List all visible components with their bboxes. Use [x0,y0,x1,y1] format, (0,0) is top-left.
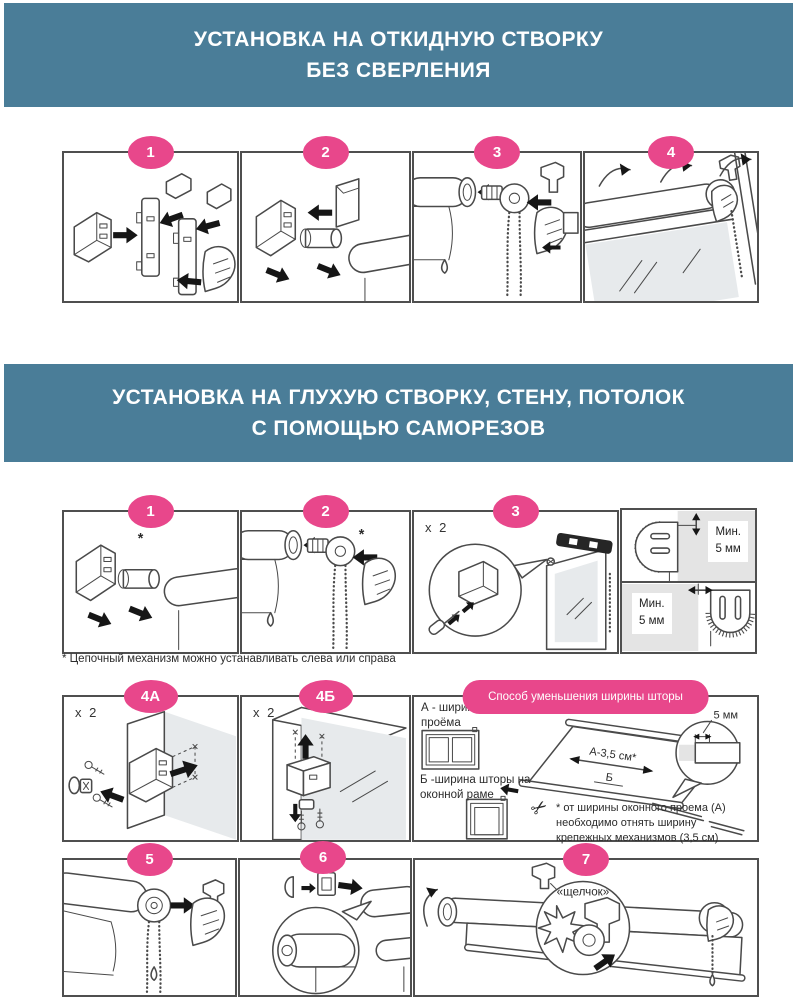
arrow-icon [194,215,222,237]
brackets-assembly-illustration [64,153,237,301]
chain-icon [333,566,335,650]
window-two-pane-icon [422,728,479,769]
step-panel-s1-1: 1 [62,151,239,303]
bracket-adapter-illustration: * [64,512,237,652]
width-reduction-title: Способ уменьшения ширины шторы [462,680,709,714]
section1-title-line2: БЕЗ СВЕРЛЕНИЯ [306,55,490,86]
section2-title-line2: С ПОМОЩЬЮ САМОРЕЗОВ [252,413,546,444]
step-panel-s2-3: 3 x 2 [412,510,619,654]
step-panel-s1-4: 4 [583,151,759,303]
width-reduction-footnote: * от ширины оконного проема (А) необходи… [556,801,752,846]
section2-title-line1: УСТАНОВКА НА ГЛУХУЮ СТВОРКУ, СТЕНУ, ПОТО… [112,382,685,413]
chain-icon [147,922,149,993]
quantity-label: x 2 [75,705,98,720]
step-badge: 3 [493,495,539,528]
click-into-bracket-illustration: «щелчок» [415,860,757,995]
mounted-blind-tilt-illustration [585,153,757,301]
step-panel-4b: 4Б x 2 [240,695,411,842]
arrow-icon [97,784,126,808]
rotate-arrow-icon [599,164,630,187]
instruction-sheet: УСТАНОВКА НА ОТКИДНУЮ СТВОРКУ БЕЗ СВЕРЛЕ… [0,0,793,1000]
min-clearance-label: Мин. 5 мм [632,593,672,634]
step-badge: 4 [648,136,694,169]
bracket-adapter-tube-illustration [242,153,409,301]
step-panel-s1-3: 3 [412,151,582,303]
arrow-icon [264,262,293,286]
step-badge: 2 [303,136,349,169]
spirit-level-icon [556,533,612,554]
step-badge: 4А [124,680,178,713]
arrow-icon [315,258,344,282]
arrow-icon [337,877,364,897]
quantity-label: x 2 [425,520,448,535]
arrow-icon [308,204,333,220]
min-clearance-label: Мин. 5 мм [708,521,748,562]
width-reduction-panel: Способ уменьшения ширины шторы А - ширин… [412,695,759,842]
step-panel-6 [238,858,412,997]
step-badge: 4Б [299,680,353,713]
attach-cap-illustration [64,860,235,995]
dim-5mm-label: 5 мм [713,709,738,721]
arrow-icon [86,607,115,631]
step-badge: 3 [474,136,520,169]
section1-title-line1: УСТАНОВКА НА ОТКИДНУЮ СТВОРКУ [194,24,603,55]
quantity-label: x 2 [253,705,276,720]
chain-icon [345,566,346,650]
arrow-icon [113,227,138,243]
roller-chain-cap-illustration [414,153,580,301]
step-panel-5: 5 [62,858,237,997]
arrow-icon [126,601,155,625]
section1-header-banner: УСТАНОВКА НА ОТКИДНУЮ СТВОРКУ БЕЗ СВЕРЛЕ… [4,3,793,107]
section2-header-banner: УСТАНОВКА НА ГЛУХУЮ СТВОРКУ, СТЕНУ, ПОТО… [4,364,793,462]
roller-chain-cap-illustration: * [242,512,409,652]
min-clearance-top-panel: Мин. 5 мм [620,508,757,585]
chain-side-note: * Цепочный механизм можно устанавливать … [62,653,396,665]
rotate-arrow-icon [424,888,437,926]
step-badge: 2 [303,495,349,528]
insert-end-plug-illustration [240,860,410,995]
min-clearance-bottom-panel: Мин. 5 мм [620,581,757,654]
step-panel-4a: 4А x 2 [62,695,239,842]
wall-plug-icon [69,777,79,793]
step-badge: 7 [563,843,609,876]
step-badge: 5 [127,843,173,876]
click-label: «щелчок» [557,886,610,899]
asterisk-mark: * [138,531,144,547]
arrow-icon [301,883,315,893]
step-panel-7: 7 «щелчок» [413,858,759,997]
step-panel-s2-1: 1 * [62,510,239,654]
step-panel-s1-2: 2 [240,151,411,303]
step-badge: 6 [300,841,346,874]
step-badge: 1 [128,136,174,169]
chain-icon [159,922,160,993]
chain-icon [507,213,509,297]
asterisk-mark: * [359,527,365,543]
chain-icon [520,213,521,297]
step-panel-s2-2: 2 * [240,510,411,654]
screw-icon [85,761,104,774]
label-b: Б -ширина шторы на оконной раме [420,773,538,803]
step-badge: 1 [128,495,174,528]
